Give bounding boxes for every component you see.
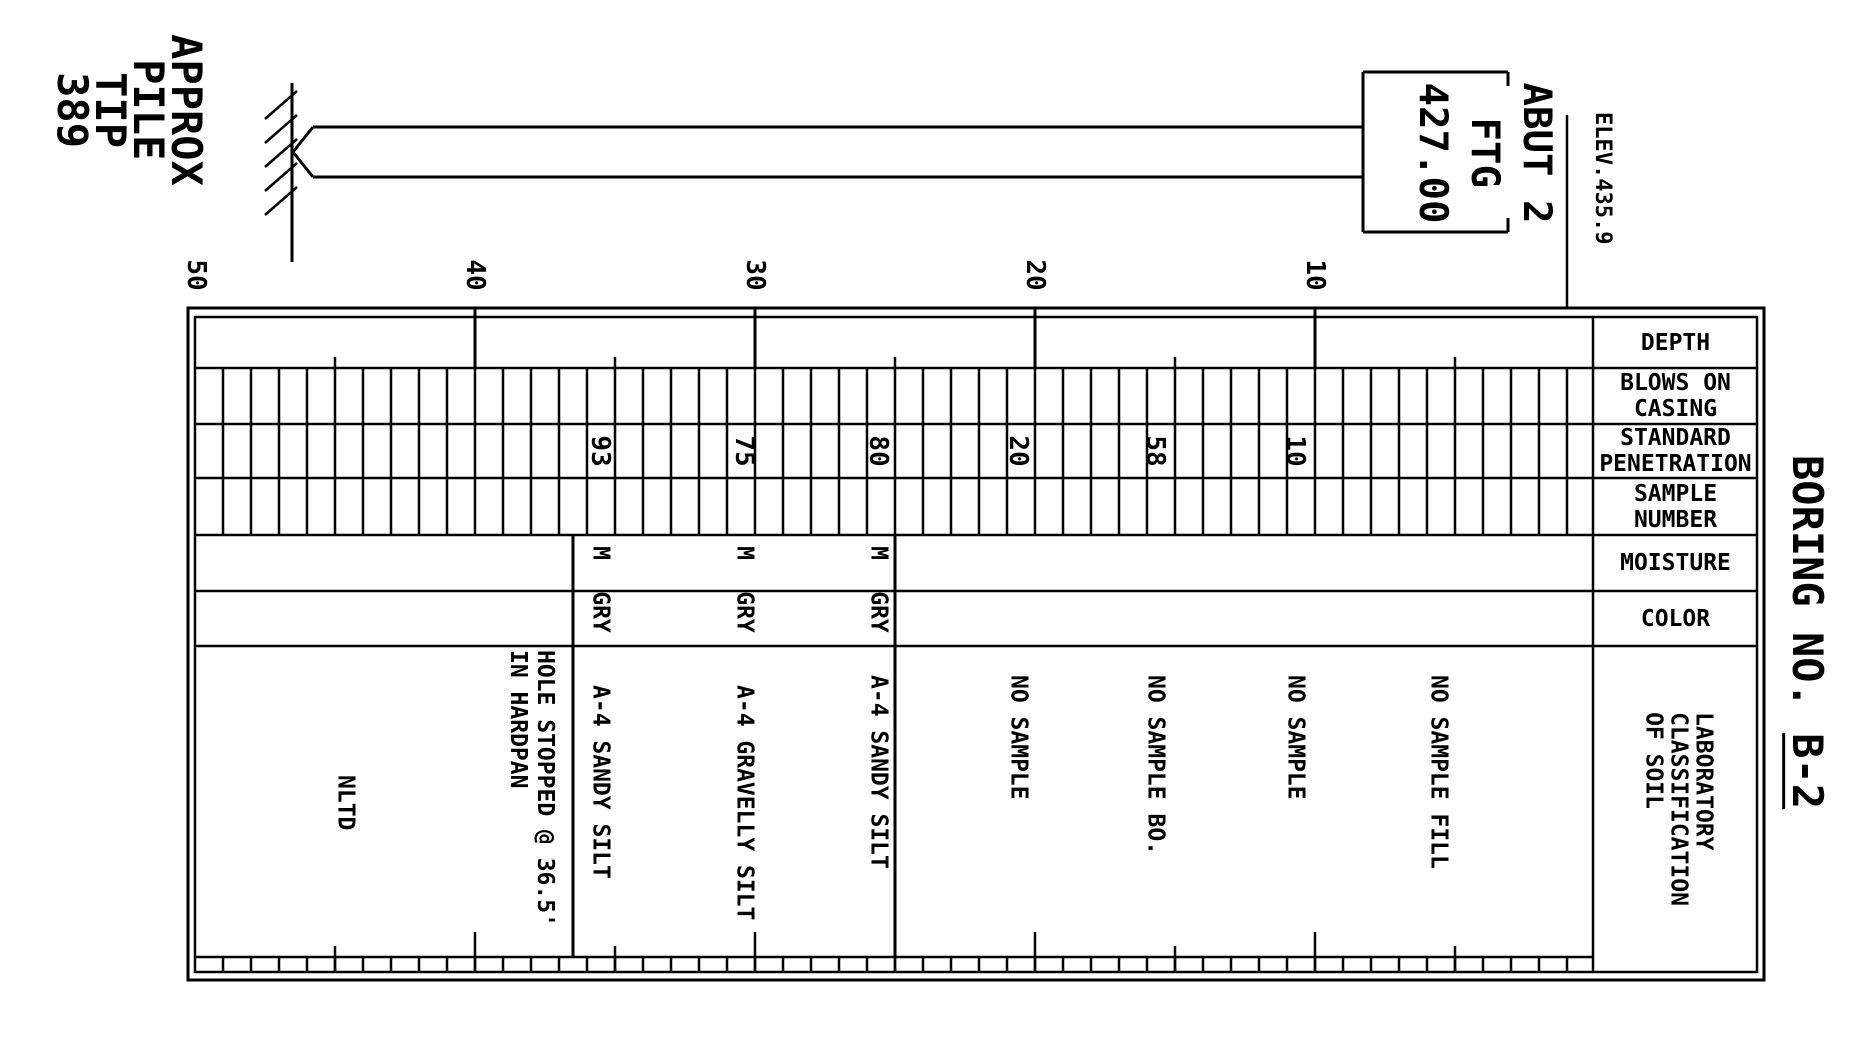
depth-scale-label: 20 — [1022, 259, 1048, 290]
column-header: SAMPLE NUMBER — [1596, 478, 1755, 535]
soil-classification-text: NO SAMPLE — [1005, 675, 1032, 800]
column-header: MOISTURE — [1596, 535, 1755, 591]
boring-number: B-2 — [1783, 733, 1832, 809]
standard-penetration-value: 10 — [1282, 435, 1308, 466]
depth-scale-label: 40 — [462, 259, 488, 290]
pile-outline — [293, 127, 1363, 177]
column-header: COLOR — [1596, 591, 1755, 646]
soil-classification-text: NO SAMPLE FILL — [1425, 675, 1452, 869]
soil-classification-text: A-4 SANDY SILT — [865, 675, 892, 869]
color-value: GRY — [587, 591, 614, 633]
column-header: BLOWS ON CASING — [1596, 368, 1755, 424]
color-value: GRY — [731, 591, 758, 633]
standard-penetration-value: 93 — [587, 435, 613, 466]
drawing-lines — [0, 0, 1868, 1044]
column-header: LABORATORY CLASSIFICATION OF SOIL — [1641, 712, 1716, 906]
moisture-value: M — [865, 546, 892, 560]
standard-penetration-value: 80 — [865, 435, 891, 466]
soil-classification-text: NO SAMPLE BO. — [1142, 675, 1169, 855]
depth-scale-label: 10 — [1302, 259, 1328, 290]
standard-penetration-value: 58 — [1142, 435, 1168, 466]
moisture-value: M — [731, 546, 758, 560]
boring-log-sheet: APPROX PILE TIP 389 ABUT 2 FTG 427.00 EL… — [0, 0, 1868, 1044]
moisture-value: M — [587, 546, 614, 560]
soil-classification-text: A-4 SANDY SILT — [587, 685, 614, 879]
column-header: DEPTH — [1596, 317, 1755, 368]
depth-scale-label: 30 — [742, 259, 768, 290]
column-header: STANDARD PENETRATION — [1596, 424, 1755, 478]
soil-classification-text: NO SAMPLE — [1282, 675, 1309, 800]
approx-pile-tip-note: APPROX PILE TIP 389 — [53, 34, 205, 186]
depth-scale-label: 50 — [183, 259, 209, 290]
abutment-footing-label: ABUT 2 FTG 427.00 — [1406, 83, 1562, 224]
standard-penetration-value: 75 — [731, 435, 757, 466]
soil-classification-text: A-4 GRAVELLY SILT — [731, 685, 758, 920]
standard-penetration-value: 20 — [1005, 435, 1031, 466]
boring-title: BORING NO. B-2 — [1786, 455, 1868, 809]
color-value: GRY — [865, 591, 892, 633]
soil-classification-text: HOLE STOPPED @ 36.5' IN HARDPAN — [504, 650, 558, 927]
pile-break-symbol — [265, 83, 297, 262]
soil-classification-text: NLTD — [332, 775, 359, 830]
table-frame — [188, 308, 1764, 980]
ground-elevation-label: ELEV.435.9 — [1590, 112, 1614, 244]
boring-title-prefix: BORING NO. — [1783, 455, 1832, 733]
